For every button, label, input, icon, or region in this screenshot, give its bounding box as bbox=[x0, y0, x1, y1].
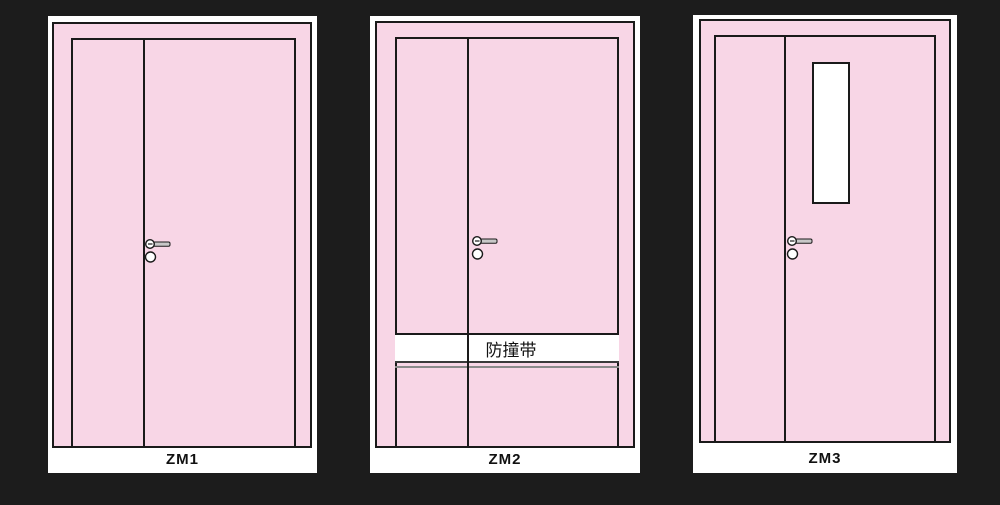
anti-collision-strip: 防撞带 bbox=[395, 333, 619, 363]
door-elevation-card-zm3: ZM3 bbox=[693, 15, 957, 473]
door-handle-icon bbox=[144, 237, 174, 267]
anti-collision-strip-label: 防撞带 bbox=[467, 335, 555, 361]
drawing-canvas: ZM1 防撞带 ZM2 ZM3 bbox=[0, 0, 1000, 505]
vision-window bbox=[812, 62, 850, 204]
panel-label: ZM2 bbox=[370, 446, 640, 473]
strip-shadow-line bbox=[395, 366, 619, 368]
door-leaves-outline bbox=[71, 38, 296, 448]
door-handle-icon bbox=[786, 234, 816, 264]
door-leaf-divider bbox=[467, 37, 469, 448]
door-lock-knob bbox=[146, 252, 156, 262]
door-elevation-card-zm1: ZM1 bbox=[48, 16, 317, 473]
door-lock-knob bbox=[788, 249, 798, 259]
door-leaves-outline bbox=[395, 37, 619, 448]
panel-label: ZM1 bbox=[48, 446, 317, 473]
door-elevation-card-zm2: 防撞带 ZM2 bbox=[370, 16, 640, 473]
door-lock-knob bbox=[473, 249, 483, 259]
panel-label: ZM3 bbox=[693, 443, 957, 473]
door-handle-icon bbox=[471, 234, 501, 264]
